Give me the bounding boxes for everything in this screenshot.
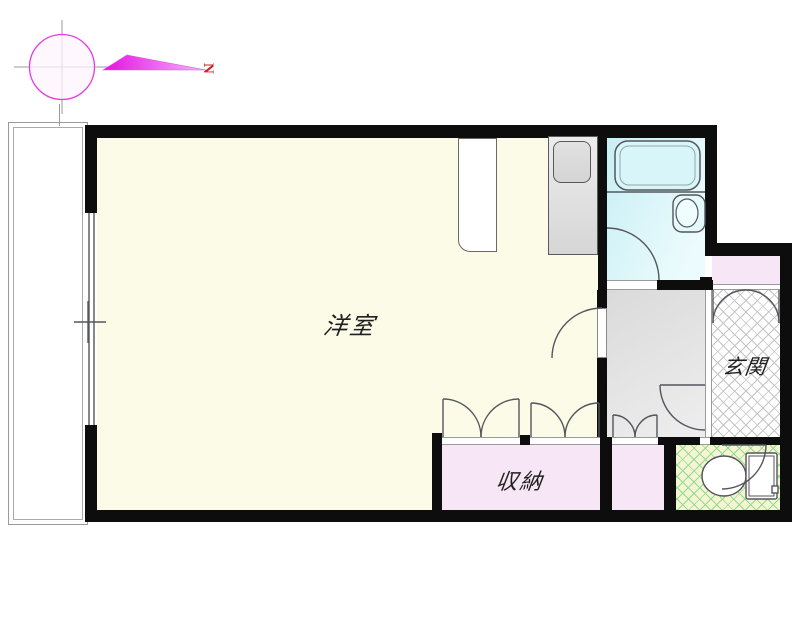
entrance-closet-line — [712, 284, 780, 290]
balcony-divider-tick — [59, 104, 60, 126]
counter — [458, 138, 497, 252]
wall-right — [780, 243, 792, 522]
hall-closet — [612, 445, 664, 510]
wall-left-upper — [85, 125, 97, 213]
room-hallway — [607, 290, 705, 437]
entrance-closet — [712, 256, 780, 284]
wall-hall-left-a — [597, 290, 607, 308]
appliance-unit — [548, 136, 598, 255]
hall-closet-opening — [612, 437, 658, 445]
storage-opening-2 — [530, 437, 600, 445]
wall-closet-toilet — [664, 437, 676, 510]
room-door-leaf — [597, 308, 607, 358]
wall-entrance-chunk — [700, 277, 712, 290]
north-label: N — [200, 63, 216, 74]
wall-left-lower — [85, 425, 97, 522]
compass-icon: N — [14, 20, 216, 114]
wall-mullion — [520, 435, 530, 445]
appliance-top — [553, 141, 591, 183]
room-toilet — [676, 445, 780, 510]
wall-bath-right — [705, 125, 717, 256]
window — [85, 213, 97, 425]
wall-band-b — [710, 437, 792, 445]
storage-opening-1 — [442, 437, 520, 445]
wall-hall-left-b — [597, 358, 607, 437]
room-label-storage: 収納 — [458, 464, 582, 496]
wall-entrance-top — [705, 243, 792, 256]
room-label-main: 洋室 — [298, 306, 403, 341]
wall-storage-left — [432, 433, 442, 510]
room-label-entrance: 玄関 — [706, 351, 784, 381]
floor-plan: N 洋室 収納 玄関 — [0, 0, 800, 623]
room-bath — [607, 138, 705, 280]
wall-bath-left — [598, 125, 607, 290]
wall-top — [85, 125, 717, 138]
balcony-inner-line — [13, 127, 83, 520]
toilet-wall-gap — [700, 437, 710, 445]
balcony — [8, 122, 88, 525]
north-arrow-icon — [103, 55, 206, 70]
wall-bottom — [85, 510, 792, 522]
bath-threshold — [607, 280, 657, 290]
wall-storage-right — [600, 437, 612, 510]
